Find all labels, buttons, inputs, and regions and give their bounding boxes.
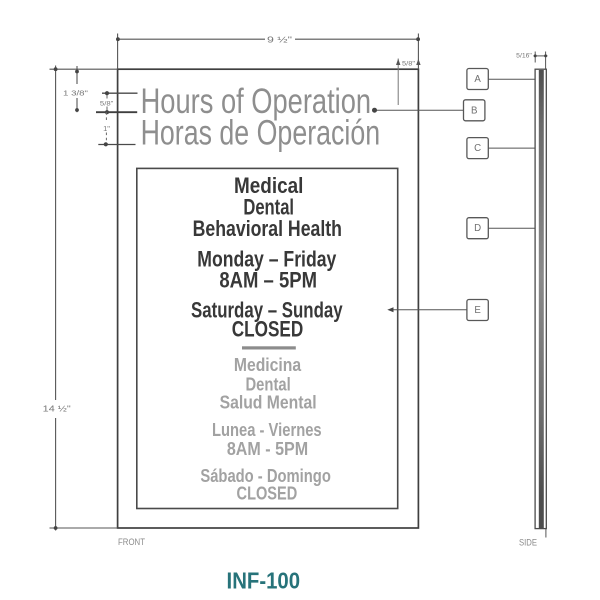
svg-text:8AM - 5PM: 8AM - 5PM [227,439,308,459]
svg-text:Dental: Dental [246,375,291,395]
svg-text:SIDE: SIDE [519,537,537,547]
svg-text:D: D [474,223,481,234]
svg-text:FRONT: FRONT [118,537,145,547]
svg-text:1": 1" [103,124,110,133]
svg-text:Salud Mental: Salud Mental [220,393,317,413]
svg-text:5/8": 5/8" [100,100,114,107]
svg-text:5/16": 5/16" [516,53,532,60]
svg-text:1 3/8": 1 3/8" [63,91,89,98]
svg-text:CLOSED: CLOSED [237,484,298,504]
svg-text:Lunea - Viernes: Lunea - Viernes [212,420,322,440]
svg-text:8AM – 5PM: 8AM – 5PM [219,268,317,293]
svg-text:CLOSED: CLOSED [232,317,304,342]
svg-text:Behavioral Health: Behavioral Health [193,216,342,241]
svg-text:B: B [471,105,477,116]
svg-text:E: E [474,305,481,316]
svg-text:14 ½": 14 ½" [43,404,71,414]
svg-text:Horas de Operación: Horas de Operación [141,113,381,152]
svg-text:9 ½": 9 ½" [267,34,292,44]
svg-text:A: A [474,74,481,85]
svg-text:INF-100: INF-100 [227,568,301,594]
svg-text:C: C [474,143,481,154]
svg-text:5/8": 5/8" [402,60,416,67]
svg-text:Medicina: Medicina [234,355,302,375]
